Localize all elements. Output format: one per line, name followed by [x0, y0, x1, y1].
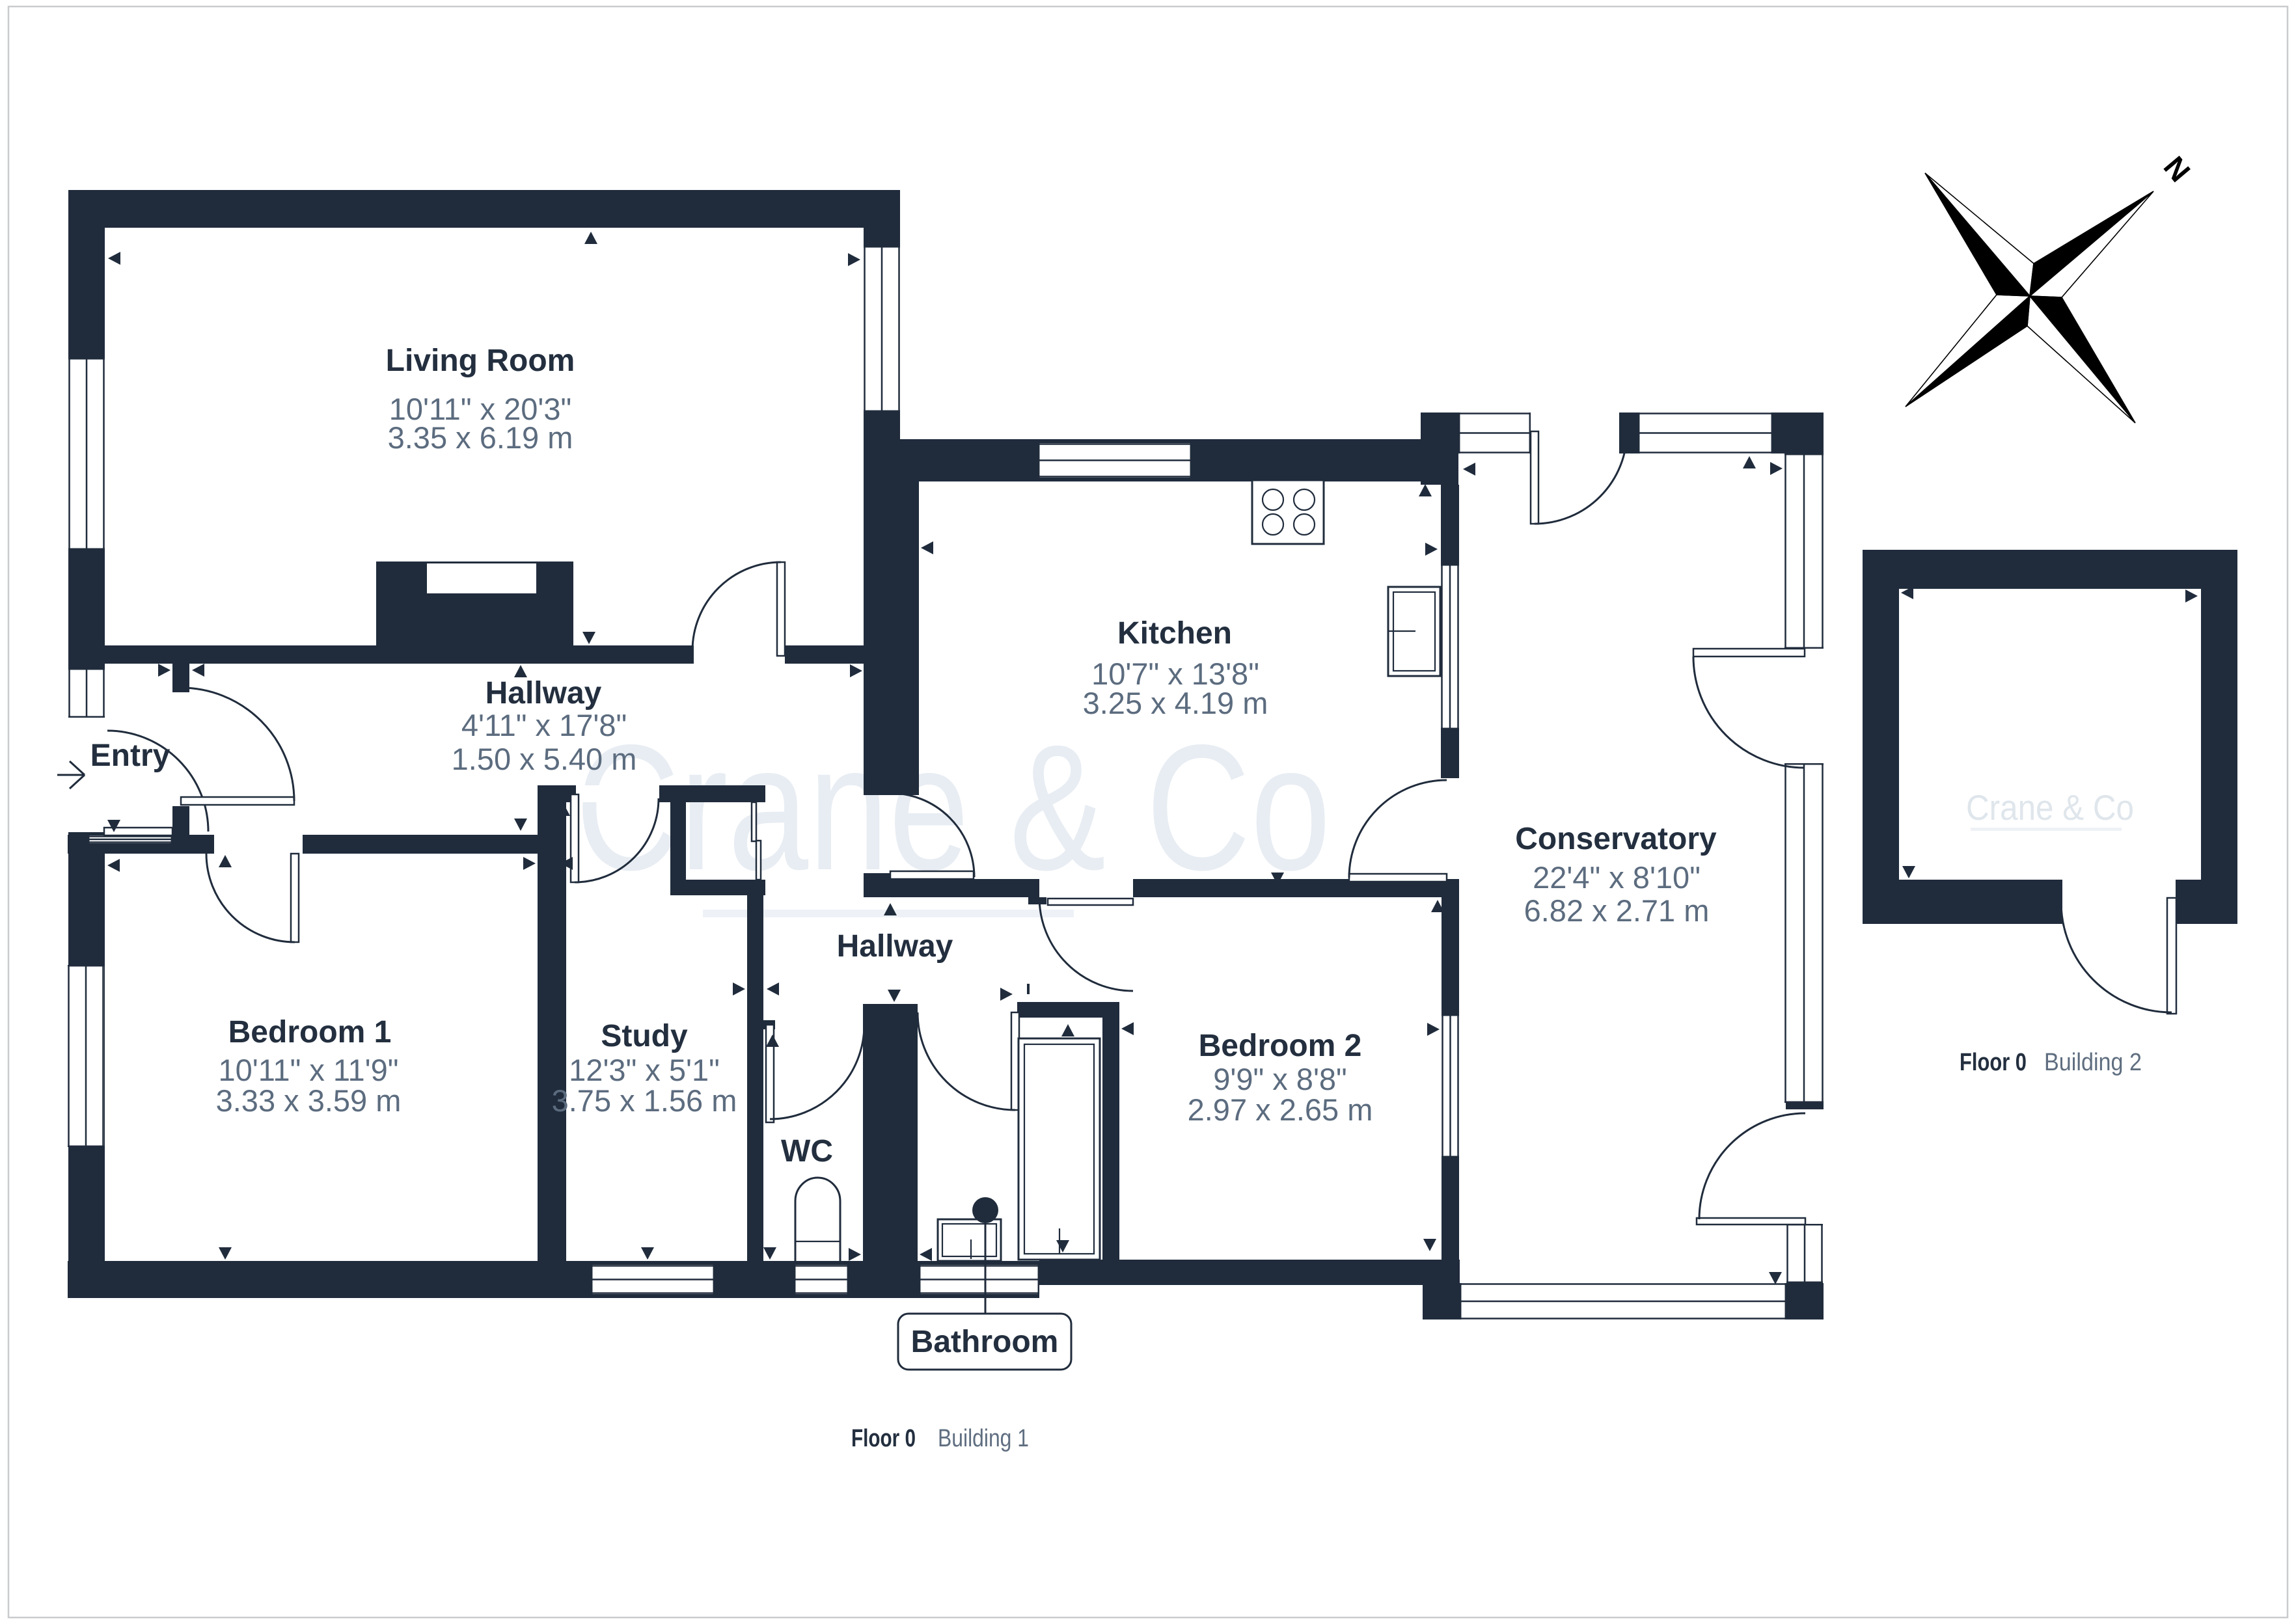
svg-text:6.82 x 2.71 m: 6.82 x 2.71 m: [1524, 893, 1710, 928]
svg-text:Conservatory: Conservatory: [1515, 822, 1717, 856]
svg-text:Study: Study: [601, 1019, 688, 1053]
svg-text:12'3" x 5'1": 12'3" x 5'1": [569, 1053, 720, 1087]
svg-text:Entry: Entry: [90, 738, 171, 773]
svg-text:Hallway: Hallway: [485, 676, 602, 710]
svg-text:Bedroom 1: Bedroom 1: [228, 1015, 392, 1049]
svg-text:Floor 0: Floor 0: [851, 1425, 916, 1452]
svg-text:Living Room: Living Room: [386, 344, 575, 378]
svg-text:10'11" x 11'9": 10'11" x 11'9": [219, 1053, 399, 1087]
svg-text:1.50 x 5.40 m: 1.50 x 5.40 m: [452, 742, 637, 776]
svg-text:3.33 x 3.59 m: 3.33 x 3.59 m: [216, 1083, 402, 1118]
svg-text:Bedroom 2: Bedroom 2: [1199, 1029, 1362, 1063]
svg-text:3.25 x 4.19 m: 3.25 x 4.19 m: [1083, 686, 1268, 720]
svg-text:Floor 0: Floor 0: [1960, 1049, 2027, 1076]
svg-text:2.97 x 2.65 m: 2.97 x 2.65 m: [1188, 1092, 1373, 1127]
svg-text:WC: WC: [781, 1134, 833, 1169]
svg-text:22'4" x 8'10": 22'4" x 8'10": [1533, 860, 1701, 895]
svg-text:4'11" x 17'8": 4'11" x 17'8": [461, 708, 627, 742]
svg-text:3.75 x 1.56 m: 3.75 x 1.56 m: [552, 1083, 737, 1118]
svg-text:9'9" x 8'8": 9'9" x 8'8": [1213, 1062, 1347, 1096]
svg-text:Building 2: Building 2: [2044, 1049, 2142, 1076]
svg-text:Crane & Co: Crane & Co: [1966, 787, 2134, 828]
svg-text:3.35 x 6.19 m: 3.35 x 6.19 m: [388, 420, 573, 455]
svg-text:Building 1: Building 1: [938, 1425, 1029, 1452]
svg-text:Bathroom: Bathroom: [911, 1325, 1059, 1359]
svg-text:Hallway: Hallway: [837, 929, 953, 964]
svg-text:Kitchen: Kitchen: [1117, 616, 1232, 651]
